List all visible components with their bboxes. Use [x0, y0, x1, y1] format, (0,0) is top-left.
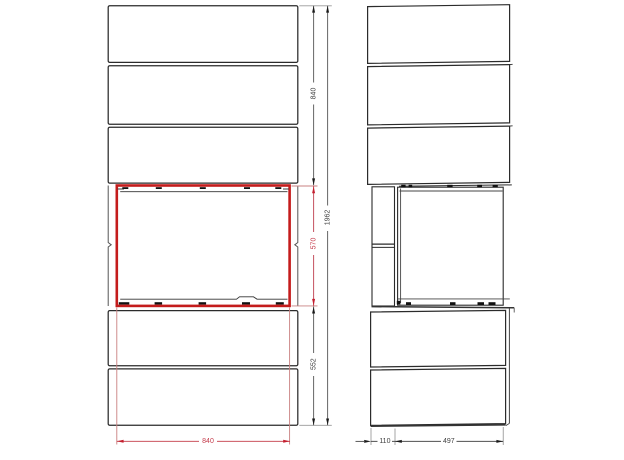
- svg-text:552: 552: [310, 358, 317, 370]
- svg-text:840: 840: [202, 438, 214, 445]
- svg-text:570: 570: [310, 238, 317, 250]
- svg-text:497: 497: [443, 438, 455, 445]
- svg-text:840: 840: [310, 88, 317, 100]
- svg-text:1962: 1962: [324, 210, 331, 226]
- svg-text:110: 110: [379, 438, 390, 445]
